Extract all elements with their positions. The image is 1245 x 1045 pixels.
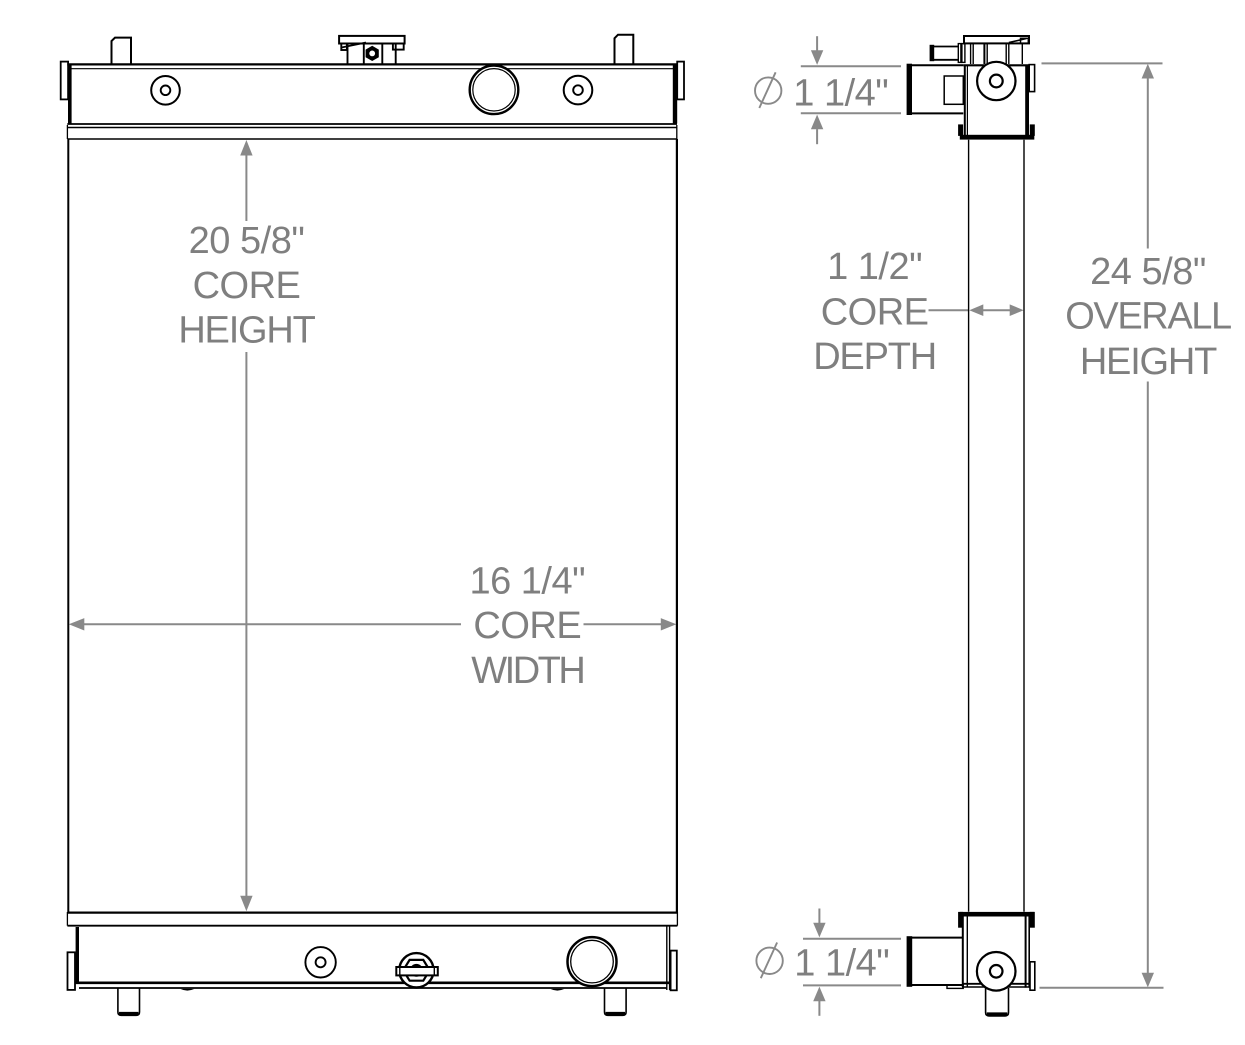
svg-text:1 1/2": 1 1/2" bbox=[827, 246, 922, 288]
svg-text:OVERALL: OVERALL bbox=[1065, 296, 1231, 338]
svg-text:CORE: CORE bbox=[821, 292, 929, 334]
svg-text:DEPTH: DEPTH bbox=[813, 336, 936, 378]
svg-text:20 5/8": 20 5/8" bbox=[189, 220, 305, 262]
svg-text:1 1/4": 1 1/4" bbox=[794, 942, 889, 984]
svg-text:WIDTH: WIDTH bbox=[471, 650, 583, 692]
svg-text:CORE: CORE bbox=[473, 605, 581, 647]
svg-text:16 1/4": 16 1/4" bbox=[469, 561, 585, 603]
svg-text:24 5/8": 24 5/8" bbox=[1090, 251, 1206, 293]
svg-text:HEIGHT: HEIGHT bbox=[178, 309, 315, 351]
svg-text:1 1/4": 1 1/4" bbox=[793, 72, 888, 114]
svg-text:CORE: CORE bbox=[193, 265, 301, 307]
svg-text:HEIGHT: HEIGHT bbox=[1080, 341, 1217, 383]
